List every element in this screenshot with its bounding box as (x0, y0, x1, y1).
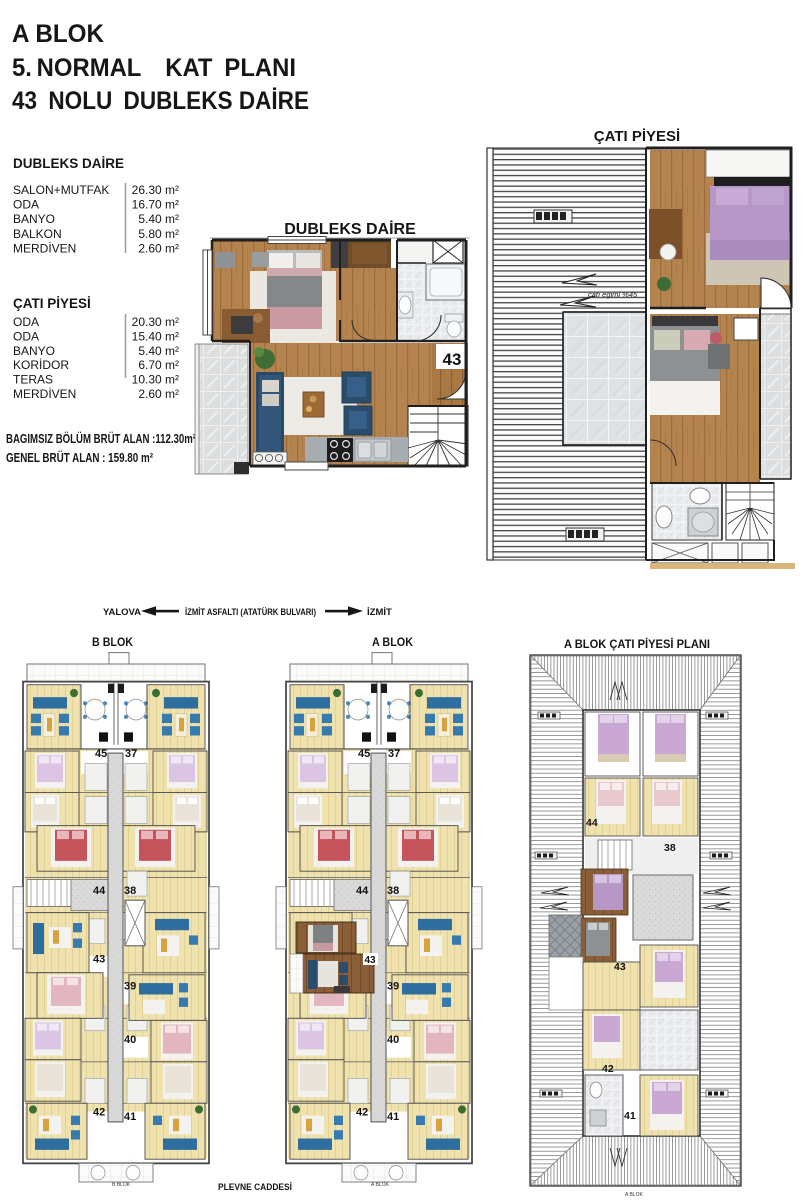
svg-text:44: 44 (586, 817, 598, 829)
svg-text:5.40 m²: 5.40 m² (138, 344, 179, 358)
svg-text:15.40 m²: 15.40 m² (132, 329, 179, 343)
svg-text:MERDİVEN: MERDİVEN (13, 387, 76, 401)
svg-text:ODA: ODA (13, 198, 39, 212)
svg-text:BAGIMSIZ BÖLÜM BRÜT ALAN :112: BAGIMSIZ BÖLÜM BRÜT ALAN :112.30m² (6, 431, 196, 446)
svg-text:GENEL BRÜT ALAN : 159.80 m²: GENEL BRÜT ALAN : 159.80 m² (6, 450, 153, 465)
svg-text:A BLOK: A BLOK (12, 20, 104, 48)
svg-text:2.60 m²: 2.60 m² (138, 387, 179, 401)
svg-text:43 NOLU DUBLEKS DAİRE: 43 NOLU DUBLEKS DAİRE (12, 87, 309, 115)
svg-text:A BLOK: A BLOK (372, 635, 413, 649)
svg-text:A BLOK ÇATI PİYESİ PLANI: A BLOK ÇATI PİYESİ PLANI (564, 638, 710, 651)
svg-text:YALOVA: YALOVA (103, 607, 141, 618)
svg-text:DUBLEKS DAİRE: DUBLEKS DAİRE (284, 220, 416, 238)
svg-text:KORİDOR: KORİDOR (13, 358, 69, 372)
svg-text:41: 41 (624, 1110, 636, 1122)
svg-text:MERDİVEN: MERDİVEN (13, 241, 76, 255)
svg-text:SALON+MUTFAK: SALON+MUTFAK (13, 183, 109, 197)
svg-text:İZMİT: İZMİT (367, 607, 392, 618)
svg-text:5.40 m²: 5.40 m² (138, 212, 179, 226)
svg-text:20.30 m²: 20.30 m² (132, 315, 179, 329)
svg-text:43: 43 (364, 955, 376, 966)
svg-text:ÇATI PİYESİ: ÇATI PİYESİ (594, 128, 680, 145)
svg-text:43: 43 (614, 961, 626, 973)
svg-text:catı egimi %45: catı egimi %45 (588, 290, 638, 299)
svg-text:A BLOK: A BLOK (625, 1192, 643, 1198)
svg-text:ODA: ODA (13, 315, 39, 329)
svg-text:ÇATI PİYESİ: ÇATI PİYESİ (13, 296, 91, 311)
svg-text:BANYO: BANYO (13, 212, 55, 226)
svg-text:BANYO: BANYO (13, 344, 55, 358)
svg-text:16.70 m²: 16.70 m² (132, 198, 179, 212)
svg-text:6.70 m²: 6.70 m² (138, 358, 179, 372)
svg-text:2.60 m²: 2.60 m² (138, 241, 179, 255)
svg-text:B BLOK: B BLOK (92, 635, 133, 649)
svg-text:5. NORMAL KAT PLANI: 5. NORMAL KAT PLANI (12, 54, 296, 82)
svg-text:10.30 m²: 10.30 m² (132, 373, 179, 387)
svg-text:İZMİT ASFALTI (ATATÜRK BULVA: İZMİT ASFALTI (ATATÜRK BULVARI) (185, 607, 316, 617)
svg-text:BALKON: BALKON (13, 227, 62, 241)
svg-text:5.80 m²: 5.80 m² (138, 227, 179, 241)
svg-text:A BLOK: A BLOK (371, 1182, 389, 1188)
svg-text:DUBLEKS DAİRE: DUBLEKS DAİRE (13, 156, 124, 171)
svg-text:43: 43 (443, 350, 462, 369)
svg-text:38: 38 (664, 842, 676, 854)
svg-text:26.30 m²: 26.30 m² (132, 183, 179, 197)
svg-text:TERAS: TERAS (13, 373, 53, 387)
svg-text:B BLOK: B BLOK (112, 1182, 131, 1188)
svg-text:PLEVNE CADDESİ: PLEVNE CADDESİ (218, 1182, 292, 1193)
svg-text:42: 42 (602, 1063, 614, 1075)
svg-text:ODA: ODA (13, 329, 39, 343)
